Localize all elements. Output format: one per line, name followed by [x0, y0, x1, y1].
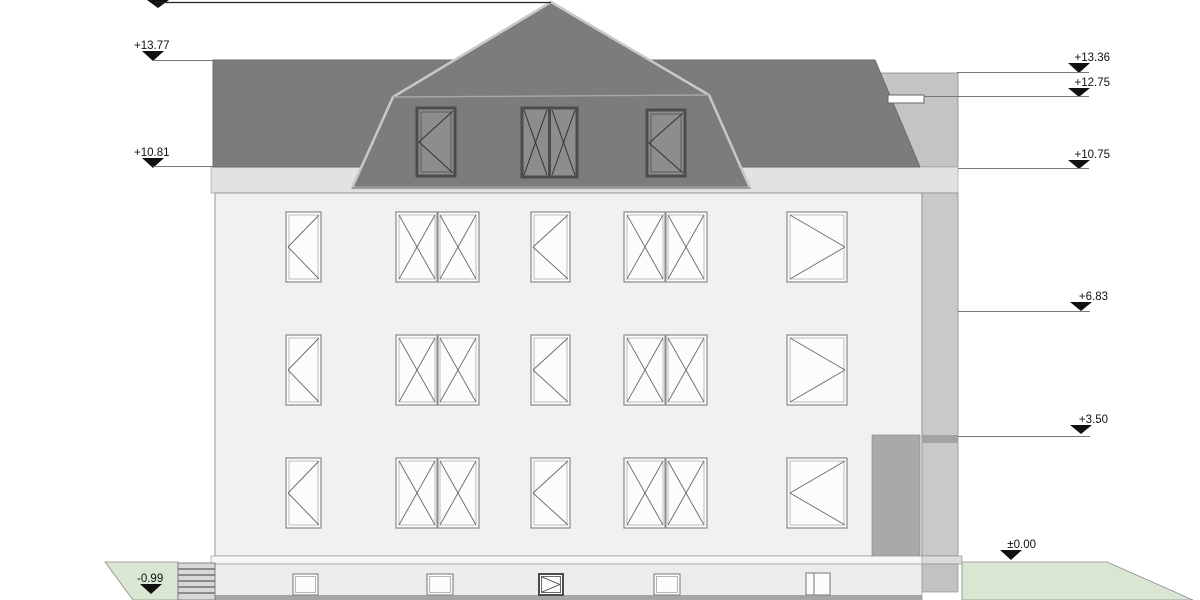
level-marker-13-77: +13.77 — [134, 40, 213, 61]
facade-window-r3c4 — [624, 458, 707, 528]
basement-window-5 — [806, 573, 830, 595]
level-marker-ridge — [147, 0, 551, 8]
level-marker-0-00: ±0.00 — [1000, 539, 1036, 560]
level-marker-10-75: +10.75 — [958, 149, 1110, 169]
level-label: +6.83 — [1079, 291, 1108, 303]
facade-window-r1c3 — [531, 212, 570, 282]
facade-window-r3c1 — [286, 458, 321, 528]
dormer-window-left — [417, 108, 455, 176]
dormer-window-right — [647, 110, 685, 176]
level-triangle-icon — [1000, 550, 1022, 560]
level-label: -0.99 — [137, 573, 163, 585]
annex-base-sill — [920, 556, 962, 564]
facade-window-r1c2 — [396, 212, 479, 282]
level-triangle-icon — [1068, 63, 1090, 73]
elevation-drawing: +13.77 +10.81 -0.99 +13.36 +12.75 +10.75… — [0, 0, 1200, 600]
facade-window-r1c5 — [787, 212, 847, 282]
level-marker-13-36: +13.36 — [957, 52, 1110, 73]
level-label: ±0.00 — [1007, 539, 1036, 551]
roof-ledge — [888, 95, 924, 103]
level-label: +12.75 — [1075, 77, 1111, 89]
level-label: +13.77 — [134, 40, 170, 52]
basement-window-1 — [293, 574, 318, 595]
level-triangle-icon — [1068, 160, 1090, 169]
level-marker-6-83: +6.83 — [958, 291, 1108, 312]
facade-window-r3c2 — [396, 458, 479, 528]
facade-window-r1c4 — [624, 212, 707, 282]
facade-window-r3c3 — [531, 458, 570, 528]
level-triangle-icon — [147, 0, 169, 8]
level-label: +3.50 — [1079, 414, 1108, 426]
ground-right — [962, 562, 1193, 600]
annex-lower-wall — [922, 193, 958, 556]
facade-window-r1c1 — [286, 212, 321, 282]
level-triangle-icon — [1070, 425, 1092, 434]
elevation-canvas: +13.77 +10.81 -0.99 +13.36 +12.75 +10.75… — [0, 0, 1200, 600]
level-label: +10.75 — [1075, 149, 1111, 161]
facade-window-r2c2 — [396, 335, 479, 405]
dormer-window-center — [522, 108, 577, 177]
level-marker-3-50: +3.50 — [958, 414, 1108, 437]
entrance-stairs — [178, 563, 215, 600]
annex-slab-strip — [922, 435, 958, 443]
facade-window-r2c5 — [787, 335, 847, 405]
facade-window-r2c4 — [624, 335, 707, 405]
facade-window-r2c1 — [286, 335, 321, 405]
basement-window-4 — [654, 574, 680, 595]
level-triangle-icon — [142, 51, 164, 61]
level-triangle-icon — [1070, 302, 1092, 311]
loggia-block — [872, 435, 920, 556]
basement-window-2 — [427, 574, 453, 595]
basement-window-3 — [539, 574, 563, 595]
level-label: +13.36 — [1075, 52, 1111, 64]
facade-window-r2c3 — [531, 335, 570, 405]
plinth-sill-band — [211, 556, 922, 564]
plinth-base-shadow — [215, 595, 922, 600]
level-label: +10.81 — [134, 147, 170, 159]
facade-window-r3c5 — [787, 458, 847, 528]
level-triangle-icon — [1068, 88, 1090, 97]
level-marker-10-81: +10.81 — [134, 147, 214, 168]
annex-base-block — [922, 564, 958, 592]
